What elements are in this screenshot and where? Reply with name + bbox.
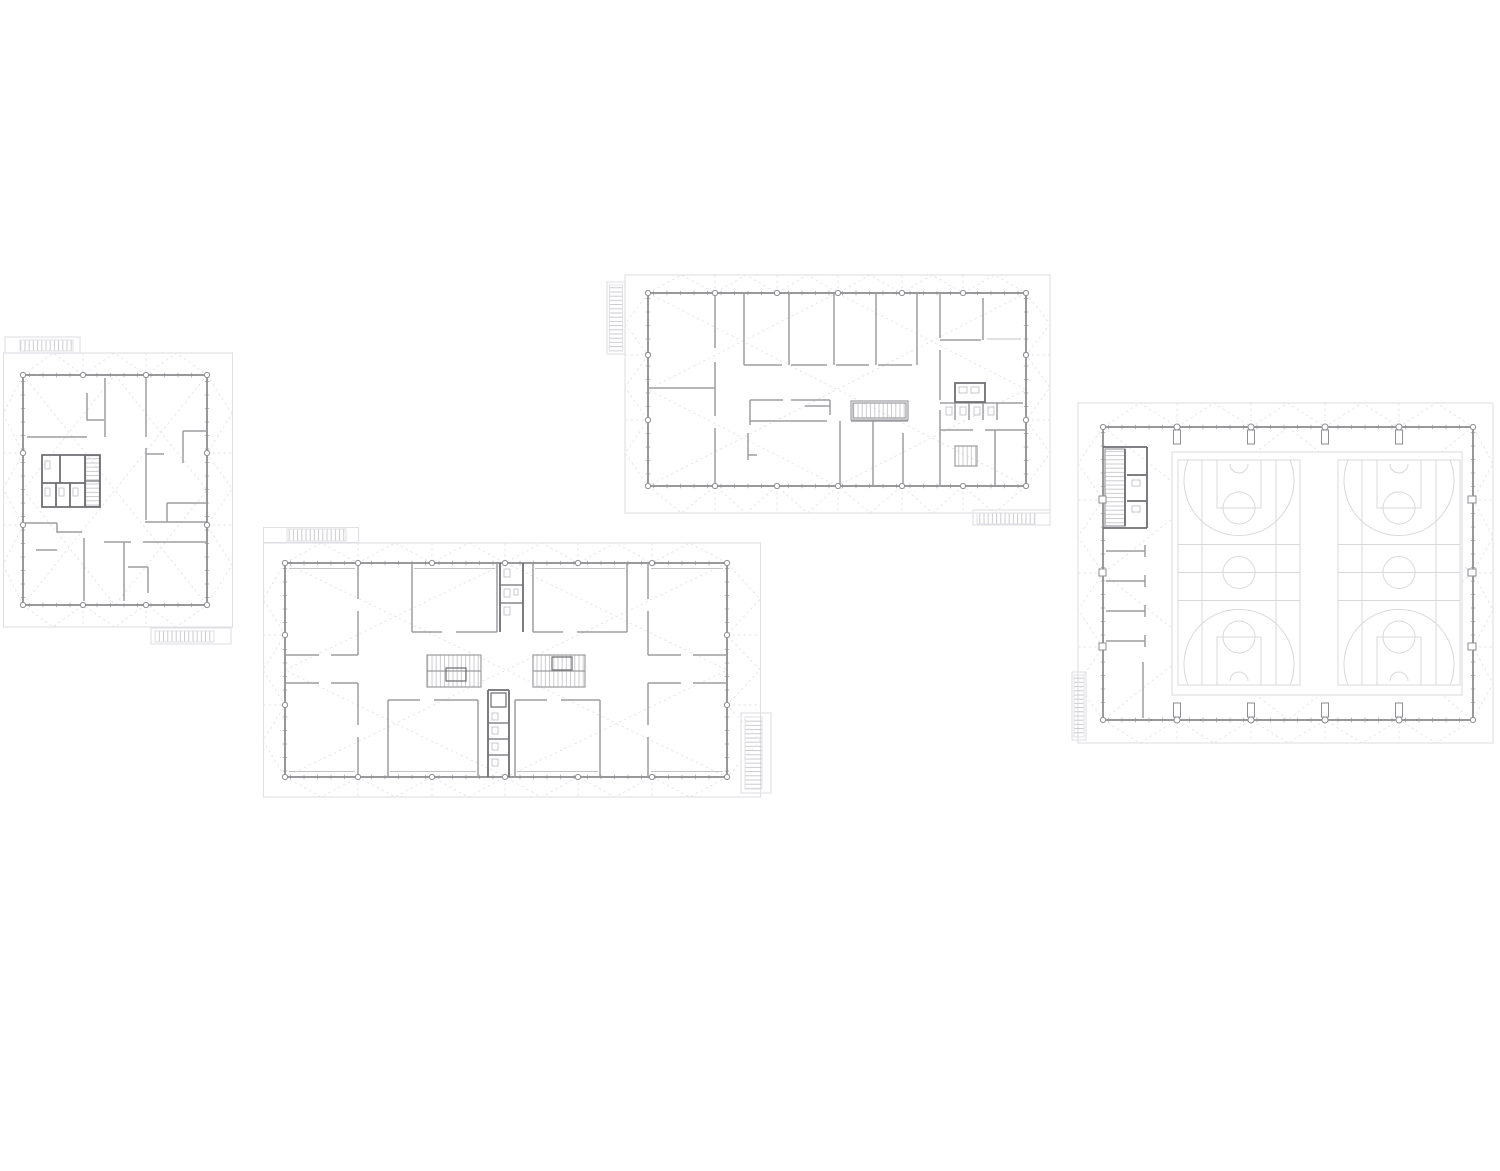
toilet-core-top	[500, 563, 523, 632]
drawing-sheet	[0, 0, 1500, 1171]
court-zone	[1172, 452, 1462, 695]
toilet-fixtures	[45, 461, 78, 496]
exterior-stair-bottom	[155, 631, 214, 642]
stair-flight	[1105, 449, 1125, 526]
exterior-stair-top	[287, 529, 346, 541]
floor-plan-a	[3, 337, 233, 644]
roof-outline	[625, 275, 1050, 513]
toilet-core-bottom	[488, 690, 509, 777]
stair-core-left	[427, 655, 481, 687]
roof-fold-lines	[263, 543, 760, 797]
column-grid	[282, 560, 729, 779]
column-grid	[20, 372, 209, 607]
changing-room-strip	[1103, 447, 1147, 718]
fixtures	[1132, 480, 1140, 512]
roof-fold-lines	[3, 353, 232, 627]
partition-walls	[1106, 545, 1145, 718]
architectural-drawing-canvas	[0, 0, 1500, 1171]
roof-outline	[264, 543, 761, 797]
room-fittings	[289, 569, 723, 772]
stair-toilet-core	[42, 455, 100, 507]
service-stair	[955, 446, 977, 466]
floor-plan-b	[607, 275, 1050, 525]
exterior-stair-left	[1074, 675, 1084, 737]
interior-walls	[25, 378, 207, 601]
stair-core-right	[533, 655, 585, 687]
exterior-stair-right	[745, 717, 762, 789]
floor-plan-c	[263, 528, 771, 798]
exterior-stair-left	[610, 285, 623, 351]
service-room-core	[955, 383, 985, 402]
exterior-stair-bottom	[977, 513, 1035, 524]
exterior-stair-top	[20, 340, 73, 351]
roof-fold-lines	[625, 275, 1050, 513]
floor-plan-d	[1072, 403, 1493, 743]
central-stair	[853, 403, 906, 418]
